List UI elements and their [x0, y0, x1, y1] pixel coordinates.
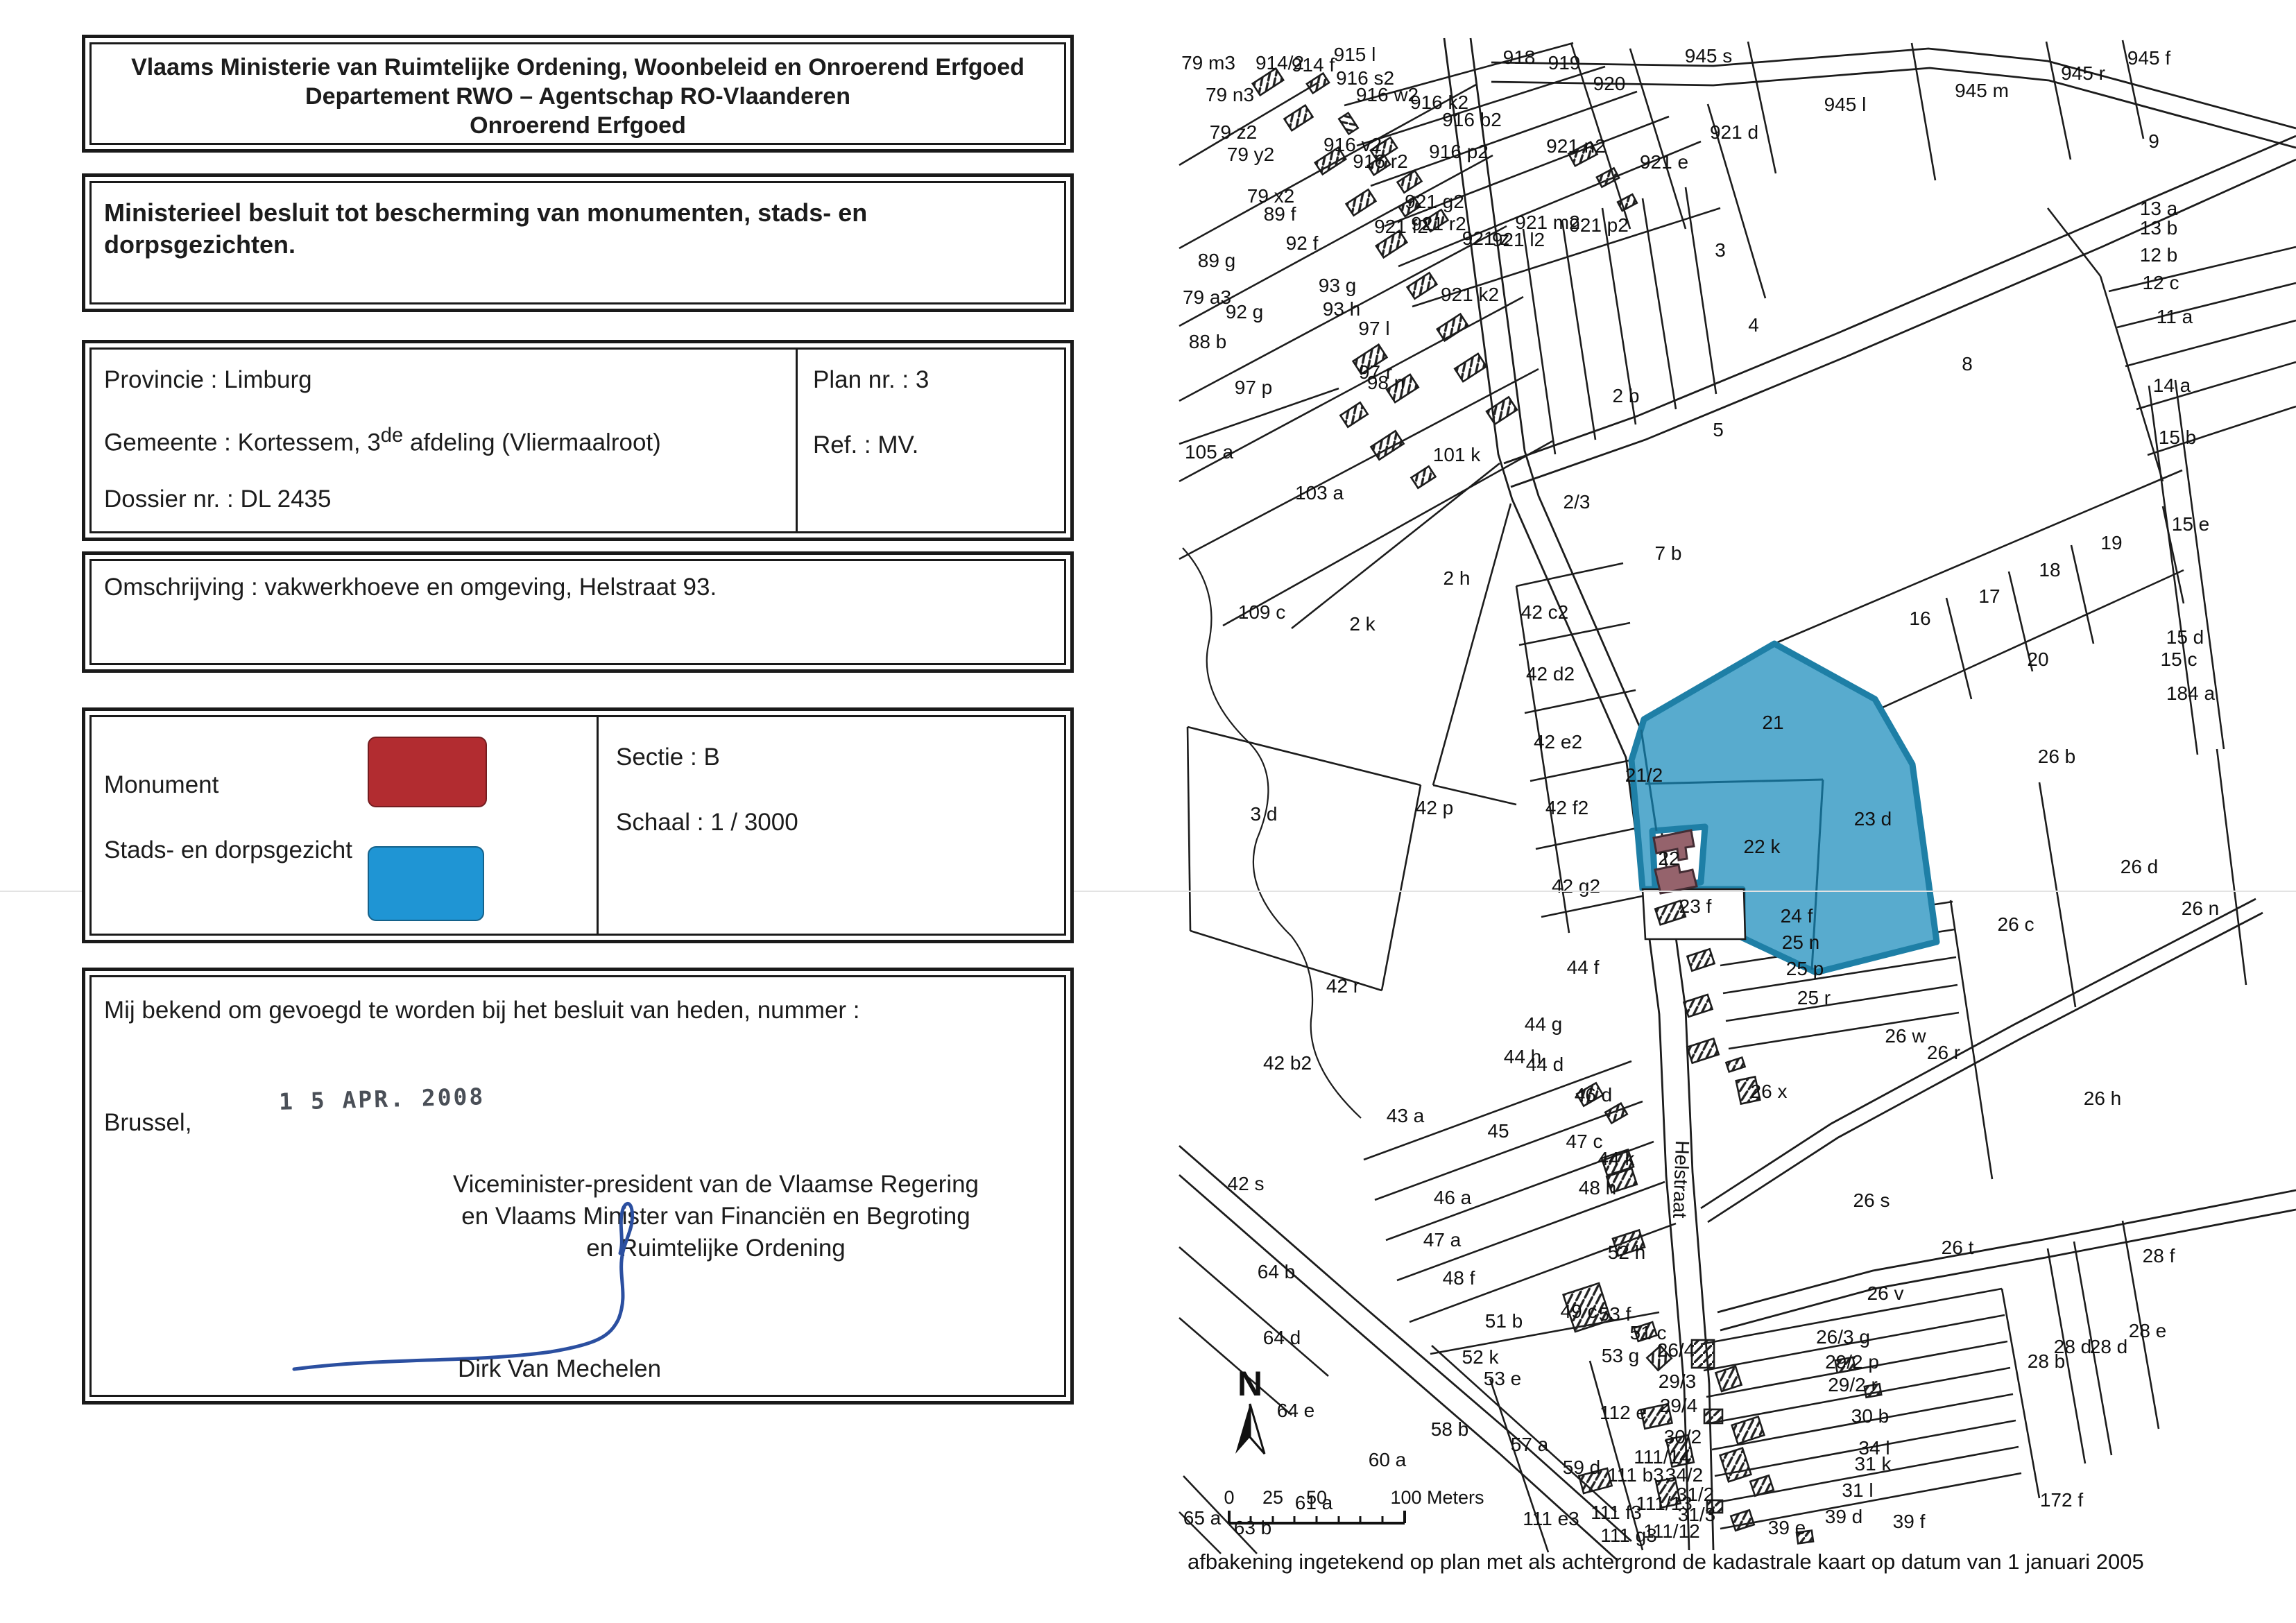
parcel-label: 46 a	[1434, 1187, 1472, 1208]
parcel-label: 64 e	[1277, 1400, 1315, 1421]
legend-box-divider	[597, 717, 599, 934]
parcel-label: 60 a	[1369, 1449, 1407, 1470]
parcel-label: 111 b3	[1607, 1464, 1663, 1486]
parcel-label: 26 d	[2121, 856, 2159, 877]
besluit-title-line-1: Ministerieel besluit tot bescherming van…	[104, 198, 867, 227]
parcel-label: 921 r2	[1411, 213, 1466, 234]
parcel-label: 29/2 p	[1825, 1351, 1879, 1373]
parcel-label: 29/4	[1660, 1395, 1698, 1416]
scalebar-label: 100 Meters	[1390, 1487, 1484, 1508]
parcel-label: 25 p	[1786, 958, 1824, 979]
parcel-label: 24 f	[1781, 905, 1813, 927]
parcel-boundary-line	[1188, 727, 1421, 785]
parcel-label: 42 c2	[1521, 601, 1569, 623]
parcel-label: 17	[1978, 585, 2000, 607]
header-box-inner: Vlaams Ministerie van Ruimtelijke Ordeni…	[89, 42, 1066, 145]
besluit-title-box: Ministerieel besluit tot bescherming van…	[82, 173, 1074, 312]
parcel-label: 26 x	[1751, 1081, 1788, 1102]
parcel-label: 15 b	[2159, 427, 2197, 448]
parcel-label: 26 h	[2084, 1088, 2122, 1109]
parcel-label: 25 n	[1782, 931, 1820, 953]
parcel-label: 63 b	[1234, 1517, 1272, 1538]
parcel-label: 3 d	[1251, 803, 1278, 825]
parcel-label: 44 d	[1526, 1054, 1564, 1075]
parcel-boundary-line	[1726, 985, 1957, 1021]
parcel-label: 42 e2	[1534, 731, 1582, 753]
parcel-label: 98 n	[1367, 372, 1405, 393]
parcel-boundary-line	[2125, 320, 2296, 366]
legend-monument-label: Monument	[104, 771, 219, 799]
parcel-label: 39 d	[1825, 1506, 1863, 1527]
parcel-label: 48 f	[1443, 1267, 1475, 1289]
parcel-boundary-line	[2071, 545, 2093, 644]
parcel-boundary-line	[1536, 826, 1647, 849]
parcel-label: 101 k	[1433, 444, 1481, 465]
parcel-label: 45	[1487, 1120, 1509, 1142]
legend-schaal: Schaal : 1 / 3000	[616, 809, 798, 836]
legend-stads-swatch	[368, 846, 484, 921]
parcel-boundary-line	[2002, 1289, 2039, 1498]
parcel-label: 64 b	[1258, 1261, 1296, 1282]
street-name-label: Helstraat	[1669, 1140, 1693, 1219]
parcel-label: 28 e	[2129, 1320, 2167, 1341]
legend-box: Monument Stads- en dorpsgezicht Sectie :…	[82, 707, 1074, 943]
parcel-label: 20	[2027, 649, 2048, 670]
parcel-label: 89 g	[1198, 250, 1236, 271]
parcel-label: 15 c	[2161, 649, 2198, 670]
header-line-3: Onroerend Erfgoed	[92, 112, 1064, 139]
parcel-label: 921 p2	[1569, 214, 1629, 236]
parcel-label: 93 g	[1319, 275, 1357, 296]
omschrijving-field: Omschrijving : vakwerkhoeve en omgeving,…	[104, 574, 717, 601]
parcel-label: 31 k	[1855, 1453, 1892, 1475]
parcel-boundary-line	[2046, 42, 2071, 160]
parcel-label: 19	[2100, 532, 2122, 553]
parcel-label: 52 h	[1608, 1242, 1646, 1263]
parcel-label: 26 v	[1867, 1282, 1904, 1304]
road-line	[1504, 136, 2296, 463]
parcel-label: 79 m3	[1181, 52, 1235, 74]
parcel-boundary-line	[1630, 49, 1686, 229]
parcel-label: 79 a3	[1183, 286, 1231, 308]
besluit-title-box-inner: Ministerieel besluit tot bescherming van…	[89, 181, 1066, 304]
parcel-label: 8	[1962, 353, 1973, 375]
parcel-label: 42 d2	[1526, 663, 1575, 685]
parcel-boundary-line	[1774, 470, 2182, 644]
besluit-title-line-2: dorpsgezichten.	[104, 230, 295, 259]
parcel-label: 945 l	[1824, 94, 1867, 115]
building-shape	[1398, 171, 1422, 192]
parcel-boundary-line	[2039, 782, 2075, 1007]
parcel-label: 42 s	[1228, 1173, 1265, 1194]
parcel-label: 31 l	[1842, 1479, 1873, 1501]
signature-box: Mij bekend om gevoegd te worden bij het …	[82, 968, 1074, 1405]
road-line	[1179, 1146, 1631, 1541]
parcel-label: 111 f3	[1591, 1502, 1642, 1523]
building-shape	[1455, 354, 1487, 381]
parcel-label: 88 b	[1189, 331, 1227, 352]
ref-field: Ref. : MV.	[813, 431, 918, 459]
parcel-label: 3	[1715, 239, 1726, 261]
building-shape	[1704, 1409, 1722, 1423]
gemeente-suffix: afdeling (Vliermaalroot)	[403, 429, 661, 456]
parcel-label: 53 e	[1484, 1368, 1522, 1389]
parcel-label: 921 d	[1710, 121, 1758, 143]
parcel-label: 92 f	[1286, 232, 1319, 254]
header-line-2: Departement RWO – Agentschap RO-Vlaander…	[92, 83, 1064, 110]
parcel-label: 111 e3	[1523, 1508, 1579, 1529]
building-shape	[1692, 1340, 1714, 1368]
map-root: 79 m3914/2914 f915 l918919945 s920945 l9…	[1179, 38, 2296, 1574]
parcel-label: 30 b	[1851, 1405, 1890, 1427]
building-shape	[1684, 995, 1712, 1017]
gemeente-prefix: Gemeente : Kortessem, 3	[104, 429, 381, 456]
parcel-label: 57 a	[1511, 1434, 1549, 1455]
parcel-label: 22 k	[1744, 836, 1781, 857]
parcel-label: 34/2	[1665, 1464, 1704, 1486]
parcel-label: 64 d	[1263, 1327, 1301, 1348]
parcel-label: 18	[2039, 559, 2060, 581]
parcel-label: 918	[1503, 46, 1536, 68]
building-shape	[1720, 1448, 1751, 1482]
building-shape	[1371, 431, 1403, 459]
parcel-label: 47 a	[1423, 1229, 1462, 1251]
parcel-label: 12 b	[2140, 244, 2178, 266]
parcel-label: 79 y2	[1227, 144, 1275, 165]
parcel-boundary-line	[1382, 785, 1421, 990]
parcel-label: 48 h	[1579, 1177, 1617, 1199]
parcel-label: 919	[1548, 52, 1581, 74]
parcel-label: 26 n	[2182, 898, 2220, 919]
parcel-label: 30/2	[1664, 1426, 1702, 1448]
omschrijving-box: Omschrijving : vakwerkhoeve en omgeving,…	[82, 551, 1074, 673]
parcel-label: 53 g	[1602, 1345, 1640, 1366]
parcel-label: 93 h	[1323, 298, 1361, 320]
parcel-label: 2 b	[1613, 385, 1640, 406]
parcel-label: 39 e	[1768, 1517, 1806, 1538]
building-shape	[1605, 1104, 1627, 1124]
parcel-label: 945 f	[2127, 47, 2170, 69]
bekend-line: Mij bekend om gevoegd te worden bij het …	[104, 997, 860, 1024]
parcel-label: 39 f	[1893, 1511, 1926, 1532]
building-shape	[1726, 1058, 1745, 1072]
gemeente-superscript: de	[381, 424, 403, 447]
building-shape	[1412, 466, 1436, 488]
parcel-label: 914 f	[1292, 54, 1335, 76]
parcel-label: 28 d	[2054, 1336, 2092, 1357]
legend-monument-swatch	[368, 737, 487, 807]
building-shape	[1715, 1366, 1741, 1391]
parcel-label: 172 f	[2040, 1489, 2083, 1511]
parcel-label: 25 r	[1797, 987, 1831, 1008]
parcel-boundary-line	[1946, 598, 1971, 699]
parcel-label: 26 s	[1853, 1190, 1890, 1211]
parcel-label: 916 b2	[1442, 109, 1502, 130]
parcel-label: 44 k	[1598, 1148, 1636, 1169]
info-box-divider	[796, 350, 798, 531]
building-shape	[1731, 1510, 1754, 1531]
header-line-1: Vlaams Ministerie van Ruimtelijke Ordeni…	[92, 54, 1064, 81]
date-stamp: 1 5 APR. 2008	[279, 1083, 486, 1115]
parcel-label: 89 f	[1264, 203, 1296, 225]
parcel-label: 42 b2	[1263, 1052, 1312, 1074]
parcel-boundary-line	[1525, 690, 1636, 713]
city-label: Brussel,	[104, 1109, 191, 1137]
parcel-label: 26/4	[1657, 1339, 1695, 1361]
parcel-label: 97 p	[1235, 377, 1273, 398]
parcel-label: 29/3	[1659, 1371, 1697, 1392]
parcel-label: 15 d	[2166, 626, 2204, 648]
building-shape	[1687, 1038, 1718, 1063]
road-line	[1720, 1210, 2296, 1330]
parcel-label: 22	[1658, 848, 1679, 869]
parcel-label: 28 d	[2090, 1336, 2128, 1357]
parcel-label: 915 l	[1334, 44, 1376, 65]
legend-sectie: Sectie : B	[616, 744, 720, 771]
parcel-label: 26 b	[2038, 746, 2076, 767]
parcel-label: 26 r	[1927, 1042, 1960, 1063]
parcel-boundary-line	[1541, 894, 1652, 917]
parcel-label: 43 a	[1387, 1105, 1425, 1126]
parcel-label: 42 r	[1326, 975, 1360, 997]
parcel-label: 2/3	[1563, 491, 1591, 513]
signer-name: Dirk Van Mechelen	[458, 1355, 661, 1383]
parcel-label: 53 f	[1599, 1303, 1631, 1325]
parcel-label: 16	[1909, 608, 1930, 629]
parcel-label: 945 r	[2061, 62, 2105, 84]
parcel-boundary-line	[1433, 504, 1511, 785]
parcel-label: 921 n2	[1546, 135, 1606, 157]
parcel-label: 13 b	[2140, 217, 2178, 239]
parcel-label: 13 a	[2140, 198, 2178, 219]
building-shape	[1732, 1417, 1765, 1444]
parcel-label: 921 e	[1640, 151, 1688, 173]
building-shape	[1437, 314, 1468, 341]
parcel-label: 111/12	[1643, 1520, 1699, 1542]
parcel-label: 28 f	[2143, 1245, 2175, 1266]
minister-title-line-2: en Vlaams Minister van Financiën en Begr…	[369, 1201, 1063, 1233]
dossier-field: Dossier nr. : DL 2435	[104, 486, 331, 513]
parcel-label: 921 l2	[1492, 229, 1545, 250]
parcel-label: 29/2 r	[1828, 1374, 1878, 1396]
parcel-label: 184 a	[2166, 682, 2215, 704]
scalebar-label: 25	[1262, 1487, 1283, 1508]
stream-line	[1183, 548, 1361, 1118]
parcel-boundary-line	[1643, 198, 1676, 409]
parcel-label: 46 d	[1575, 1084, 1613, 1106]
parcel-label: 21/2	[1625, 764, 1663, 786]
header-box: Vlaams Ministerie van Ruimtelijke Ordeni…	[82, 35, 1074, 153]
parcel-label: 5	[1713, 419, 1724, 440]
parcel-label: 42 g2	[1552, 875, 1600, 897]
parcel-label: 11 a	[2157, 306, 2193, 327]
parcel-label: 26 t	[1942, 1237, 1974, 1258]
parcel-label: 21	[1762, 712, 1783, 733]
parcel-label: 9	[2148, 130, 2159, 152]
building-shape	[1346, 189, 1376, 215]
scalebar-label: 50	[1306, 1487, 1327, 1508]
legend-box-inner: Monument Stads- en dorpsgezicht Sectie :…	[89, 715, 1066, 936]
signature-box-inner: Mij bekend om gevoegd te worden bij het …	[89, 975, 1066, 1397]
parcel-label: 2 k	[1349, 613, 1376, 635]
parcel-boundary-line	[1179, 369, 1539, 559]
parcel-boundary-line	[2109, 247, 2296, 291]
parcel-label: 23 d	[1854, 808, 1892, 830]
parcel-label: 26 c	[1998, 913, 2034, 935]
parcel-label: 97 l	[1358, 318, 1389, 339]
provincie-field: Provincie : Limburg	[104, 366, 312, 394]
parcel-label: 26 w	[1885, 1025, 1926, 1047]
map-caption: afbakening ingetekend op plan met als ac…	[1188, 1549, 2144, 1574]
parcel-label: 14 a	[2153, 375, 2191, 396]
parcel-label: 23 f	[1679, 895, 1712, 917]
parcel-boundary-line	[1179, 1247, 1328, 1376]
parcel-label: 2 h	[1443, 567, 1471, 589]
north-arrow-left-wing	[1235, 1404, 1250, 1454]
parcel-label: 105 a	[1185, 441, 1233, 463]
info-box-inner: Provincie : Limburg Gemeente : Kortessem…	[89, 347, 1066, 533]
parcel-label: 49 c	[1561, 1300, 1597, 1322]
building-shape	[1339, 113, 1358, 135]
parcel-label: 15 e	[2172, 513, 2210, 535]
building-shape	[1284, 105, 1312, 130]
parcel-boundary-line	[1686, 187, 1716, 394]
parcel-label: 921 g2	[1405, 191, 1464, 212]
north-arrow-letter: N	[1237, 1364, 1262, 1403]
parcel-label: 920	[1593, 73, 1626, 94]
omschrijving-box-inner: Omschrijving : vakwerkhoeve en omgeving,…	[89, 559, 1066, 665]
parcel-label: 65 a	[1183, 1507, 1222, 1529]
parcel-boundary-line	[1912, 43, 1935, 180]
north-arrow-right-wing	[1250, 1404, 1265, 1454]
parcel-label: 112 e	[1600, 1402, 1647, 1423]
parcel-label: 79 n3	[1206, 84, 1254, 105]
parcel-label: 945 s	[1685, 45, 1733, 67]
building-shape	[1687, 949, 1714, 970]
legend-stads-label: Stads- en dorpsgezicht	[104, 836, 352, 864]
parcel-label: 4	[1748, 314, 1759, 336]
parcel-label: 7 b	[1655, 542, 1682, 564]
parcel-label: 58 b	[1431, 1418, 1469, 1440]
road-line	[1717, 1190, 2296, 1312]
parcel-boundary-line	[2217, 749, 2246, 985]
plan-nr-field: Plan nr. : 3	[813, 366, 929, 394]
parcel-label: 52 k	[1462, 1346, 1500, 1368]
parcel-label: 916 p2	[1429, 141, 1489, 162]
minister-title-line-1: Viceminister-president van de Vlaamse Re…	[369, 1169, 1063, 1201]
parcel-label: 916 w2	[1356, 84, 1419, 105]
parcel-label: 26/3 g	[1816, 1326, 1870, 1348]
parcel-label: 44 f	[1567, 956, 1600, 978]
minister-title-line-3: en Ruimtelijke Ordening	[369, 1233, 1063, 1264]
info-box: Provincie : Limburg Gemeente : Kortessem…	[82, 340, 1074, 541]
parcel-boundary-line	[1188, 727, 1190, 931]
parcel-label: 59 d	[1563, 1457, 1601, 1478]
parcel-label: 916 r2	[1353, 151, 1407, 172]
parcel-label: 103 a	[1295, 482, 1344, 504]
building-shape	[1340, 402, 1367, 427]
parcel-label: 47 c	[1566, 1131, 1603, 1152]
parcel-label: 945 m	[1955, 80, 2009, 101]
parcel-label: 42 f2	[1545, 797, 1588, 818]
parcel-label: 51 b	[1485, 1310, 1523, 1332]
minister-title-block: Viceminister-president van de Vlaamse Re…	[369, 1169, 1063, 1265]
parcel-label: 42 p	[1416, 797, 1454, 818]
parcel-label: 44 g	[1525, 1013, 1563, 1035]
parcel-label: 921 k2	[1441, 284, 1499, 305]
parcel-label: 109 c	[1238, 601, 1286, 623]
scalebar-label: 0	[1224, 1487, 1234, 1508]
parcel-label: 12 c	[2143, 272, 2179, 293]
parcel-label: 79 z2	[1210, 121, 1258, 143]
gemeente-field: Gemeente : Kortessem, 3de afdeling (Vlie…	[104, 424, 661, 457]
building-shape	[1307, 74, 1329, 94]
